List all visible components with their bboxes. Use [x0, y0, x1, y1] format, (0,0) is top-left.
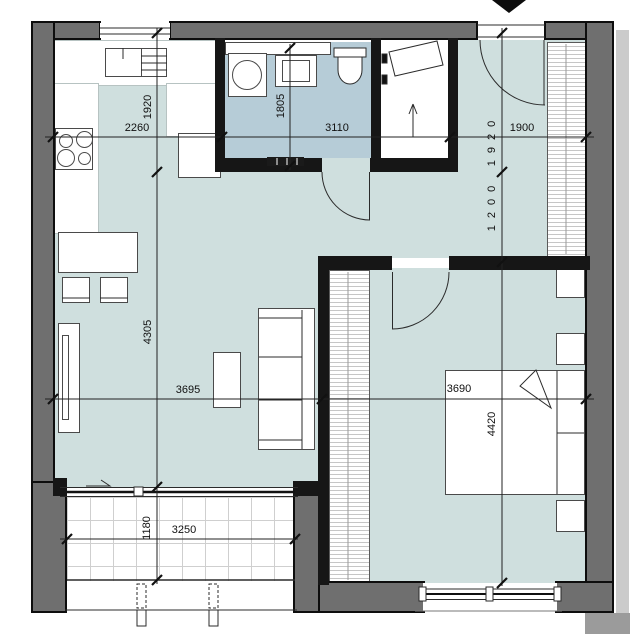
dim-hall-width: 1900	[499, 122, 545, 134]
dim-balcony-width: 3250	[161, 524, 207, 536]
dim-kitchen-depth: 1920	[142, 84, 154, 130]
closet-door-leaf	[389, 41, 443, 76]
dim-hall-depth-lower: 1200	[486, 165, 498, 245]
balcony-support-1	[137, 584, 146, 608]
floor-plan: 2260 1920 1805 3110 1900 1920 1200 4305 …	[0, 0, 640, 640]
dim-balcony-depth: 1180	[141, 505, 153, 551]
bathroom-radiator	[267, 157, 304, 166]
dim-bathroom-depth: 1805	[275, 83, 287, 129]
up-arrow-icon	[409, 104, 417, 137]
dim-bedroom-depth: 4420	[486, 401, 498, 447]
dim-bedroom-width: 3690	[436, 383, 482, 395]
dim-living-depth: 4305	[142, 309, 154, 355]
bathroom-door-arc	[322, 172, 370, 220]
toilet-tank	[334, 48, 366, 57]
balcony-support-2	[209, 584, 218, 608]
dimension-lines	[45, 28, 594, 586]
slider-handle	[134, 487, 143, 496]
dim-bathroom-width: 3110	[314, 122, 360, 134]
dimension-ticks	[48, 28, 591, 588]
blanket-fold	[520, 370, 551, 408]
dim-living-width: 3695	[165, 384, 211, 396]
entrance-door-arc	[480, 40, 545, 105]
toilet-bowl	[338, 57, 362, 84]
bedroom-door-arc	[392, 272, 449, 329]
plan-annotations	[0, 0, 640, 640]
